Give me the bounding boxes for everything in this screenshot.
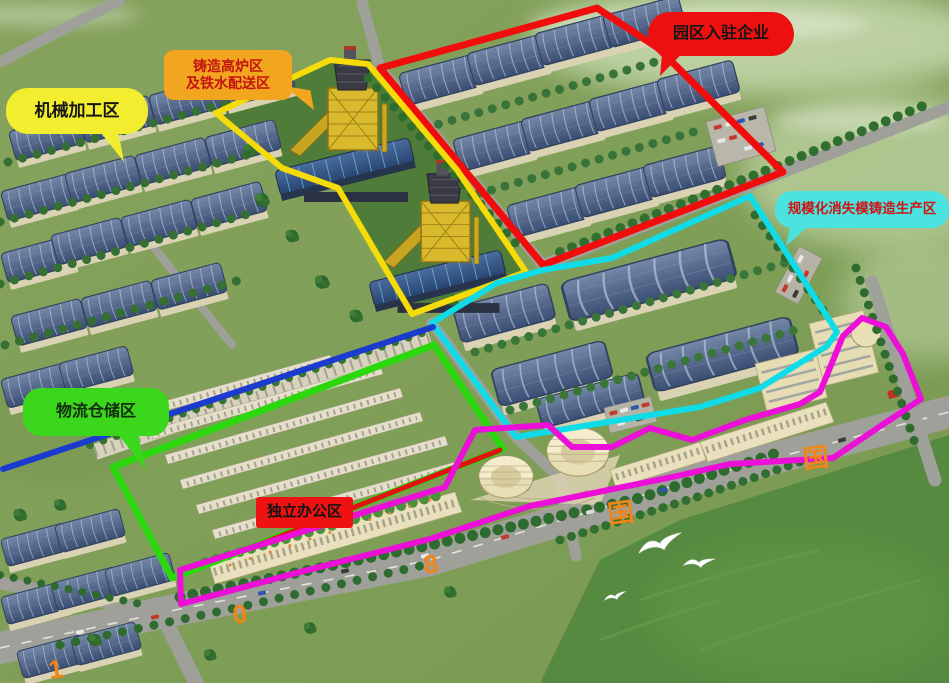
industrial-park-master-plan: 1 0 8 国 国 机械加工区 铸造高炉区 及铁水配送区 园区入驻企业 规模化消… [0,0,949,683]
label-lost-foam-area: 规模化消失模铸造生产区 [775,191,949,228]
watermark-glyph: 国 [606,496,636,529]
label-machining-area: 机械加工区 [6,88,148,134]
label-furnace-area: 铸造高炉区 及铁水配送区 [164,50,292,100]
label-logistics-area: 物流仓储区 [23,388,169,436]
round-office-tower [479,456,533,498]
label-furnace-line1: 铸造高炉区 [193,58,263,74]
label-office-area: 独立办公区 [256,497,353,528]
label-park-enterprises: 园区入驻企业 [648,12,794,56]
label-furnace-line2: 及铁水配送区 [186,75,270,91]
watermark-glyph: 国 [801,441,831,474]
